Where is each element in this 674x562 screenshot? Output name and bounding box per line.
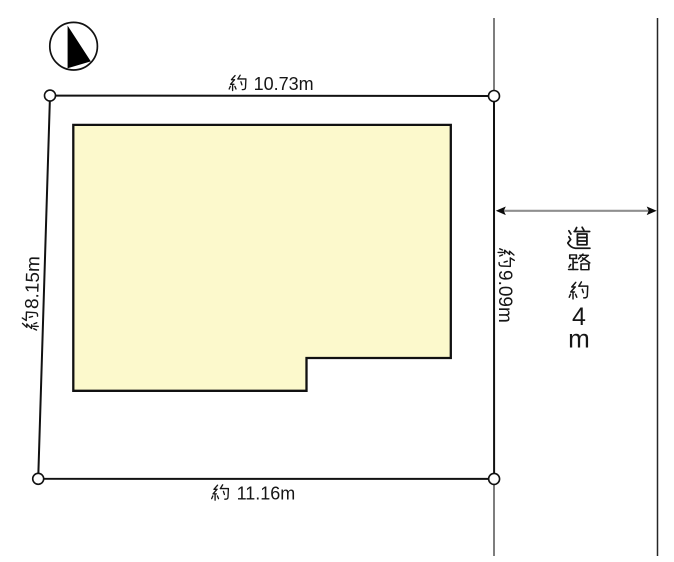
svg-text:11.16m: 11.16m	[237, 483, 296, 503]
svg-text:10.73m: 10.73m	[254, 74, 314, 94]
svg-text:9.09m: 9.09m	[494, 270, 515, 323]
svg-text:8.15m: 8.15m	[22, 256, 45, 309]
svg-text:m: m	[568, 323, 590, 353]
